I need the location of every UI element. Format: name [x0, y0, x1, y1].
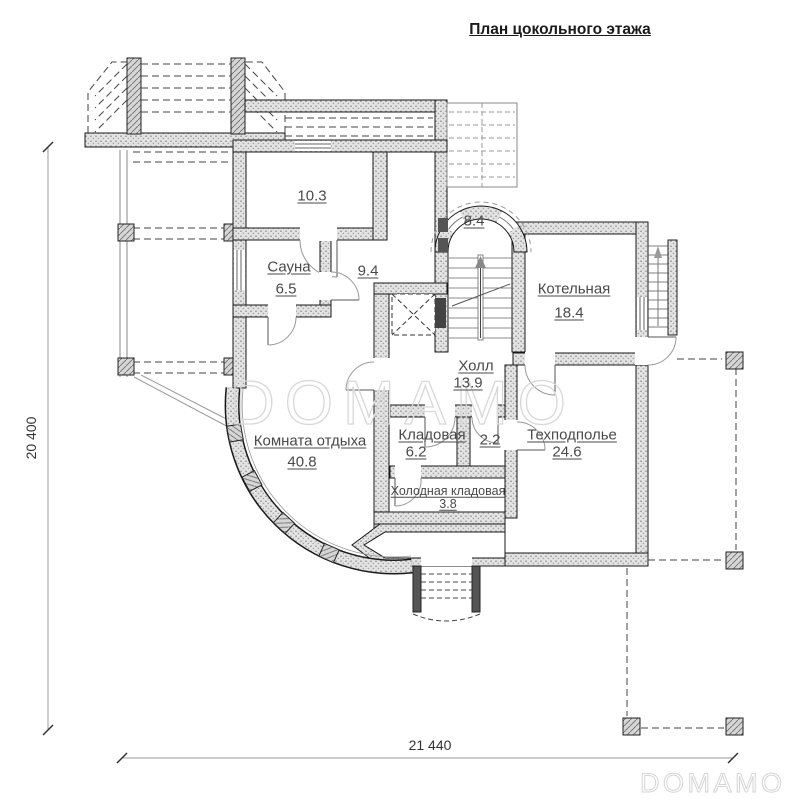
- room-label-pantry: Кладовая: [398, 428, 465, 443]
- room-area-sauna: 6.5: [276, 282, 297, 297]
- room-label-lounge: Комната отдыха: [254, 434, 367, 449]
- light-well: [364, 532, 505, 558]
- bottom-exit-stair: [413, 556, 480, 621]
- page-title: План цокольного этажа: [469, 21, 651, 39]
- room-label-sauna: Сауна: [267, 260, 310, 275]
- room-area-cold: 3.8: [439, 498, 456, 511]
- room-area-hall: 13.9: [453, 376, 482, 391]
- floor-plan-drawing: DOMAMO DOMAMO: [0, 0, 795, 800]
- left-terrace: [118, 150, 238, 430]
- room-label-boiler: Котельная: [538, 282, 611, 297]
- room-label-hall: Холл: [458, 359, 493, 374]
- room-area-tech: 24.6: [552, 445, 581, 460]
- right-exterior-stair: [648, 240, 677, 335]
- floor-plan-page: DOMAMO DOMAMO План цокольного этажа 10.3…: [0, 0, 795, 800]
- dimension-horizontal: 21 440: [409, 737, 452, 753]
- room-area-pantry: 6.2: [406, 445, 427, 460]
- room-area-8-4: 8.4: [464, 214, 485, 229]
- room-area-2-2: 2.2: [480, 433, 501, 448]
- room-area-boiler: 18.4: [554, 306, 583, 321]
- dimension-vertical: 20 400: [23, 417, 39, 460]
- dimension-lines: [43, 142, 738, 763]
- room-area-9-4: 9.4: [358, 264, 379, 279]
- room-label-tech: Техподполье: [527, 428, 617, 443]
- room-area-10-3: 10.3: [297, 189, 326, 204]
- room-label-cold: Холодная кладовая: [391, 485, 506, 498]
- watermark-bottom: DOMAMO: [640, 768, 786, 798]
- room-area-lounge: 40.8: [287, 455, 316, 470]
